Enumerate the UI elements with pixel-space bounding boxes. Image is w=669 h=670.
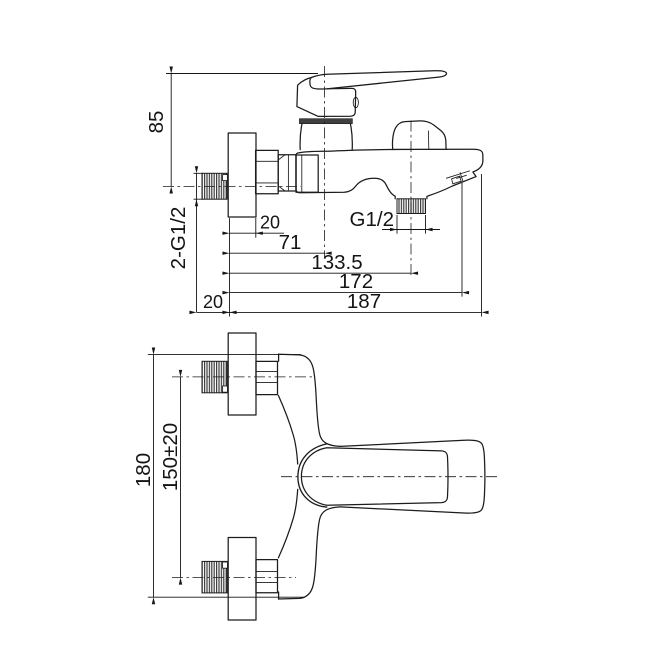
dim-187: 187: [347, 290, 381, 313]
bath-mixer-drawing: 85 2-G1/2 20 71 133.5 172 187 20 G1/2: [0, 0, 669, 670]
front-hex-nut-bottom: [256, 560, 278, 593]
cartridge-neck: [300, 124, 352, 150]
front-escutcheon-bottom: [228, 538, 256, 621]
side-body-outline: [296, 149, 483, 199]
dim-85: 85: [145, 111, 168, 134]
dim-20-escutcheon: 20: [260, 213, 280, 233]
front-inlet-thread-bottom: [202, 561, 227, 593]
side-hex-nut: [256, 150, 279, 193]
dim-20-thread: 20: [203, 292, 223, 312]
technical-drawing-page: 85 2-G1/2 20 71 133.5 172 187 20 G1/2: [0, 0, 669, 670]
side-escutcheon: [228, 133, 256, 217]
side-body-hub: [296, 155, 318, 192]
front-hex-nut-top: [256, 361, 278, 394]
cartridge-ring: [299, 119, 352, 124]
front-escutcheon-top: [228, 333, 256, 415]
side-view: [163, 66, 483, 278]
dim-2-g12: 2-G1/2: [167, 207, 190, 270]
dim-71: 71: [279, 231, 302, 254]
dim-150-20: 150±20: [159, 423, 182, 491]
handle-lever: [310, 71, 447, 89]
front-view: [172, 333, 500, 620]
side-adapter: [278, 155, 296, 191]
dim-180: 180: [132, 453, 155, 487]
dim-g12-outlet: G1/2: [350, 208, 394, 231]
handle-cap: [297, 77, 356, 116]
diverter-knob: [391, 121, 448, 150]
aerator: [446, 171, 469, 184]
